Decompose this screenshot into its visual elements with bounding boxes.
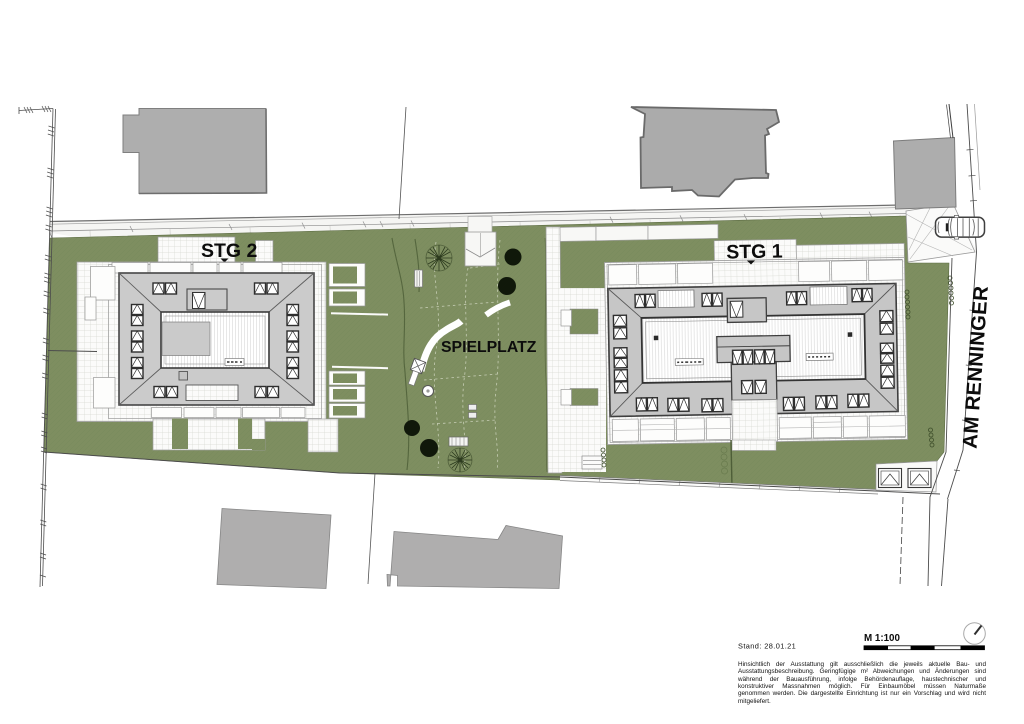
svg-text:SPIELPLATZ: SPIELPLATZ: [441, 339, 537, 356]
svg-text:STG 2: STG 2: [201, 240, 258, 262]
svg-text:Stand: 28.01.21: Stand: 28.01.21: [738, 641, 796, 650]
svg-text:M 1:100: M 1:100: [864, 633, 900, 644]
svg-text:STG 1: STG 1: [726, 240, 783, 263]
